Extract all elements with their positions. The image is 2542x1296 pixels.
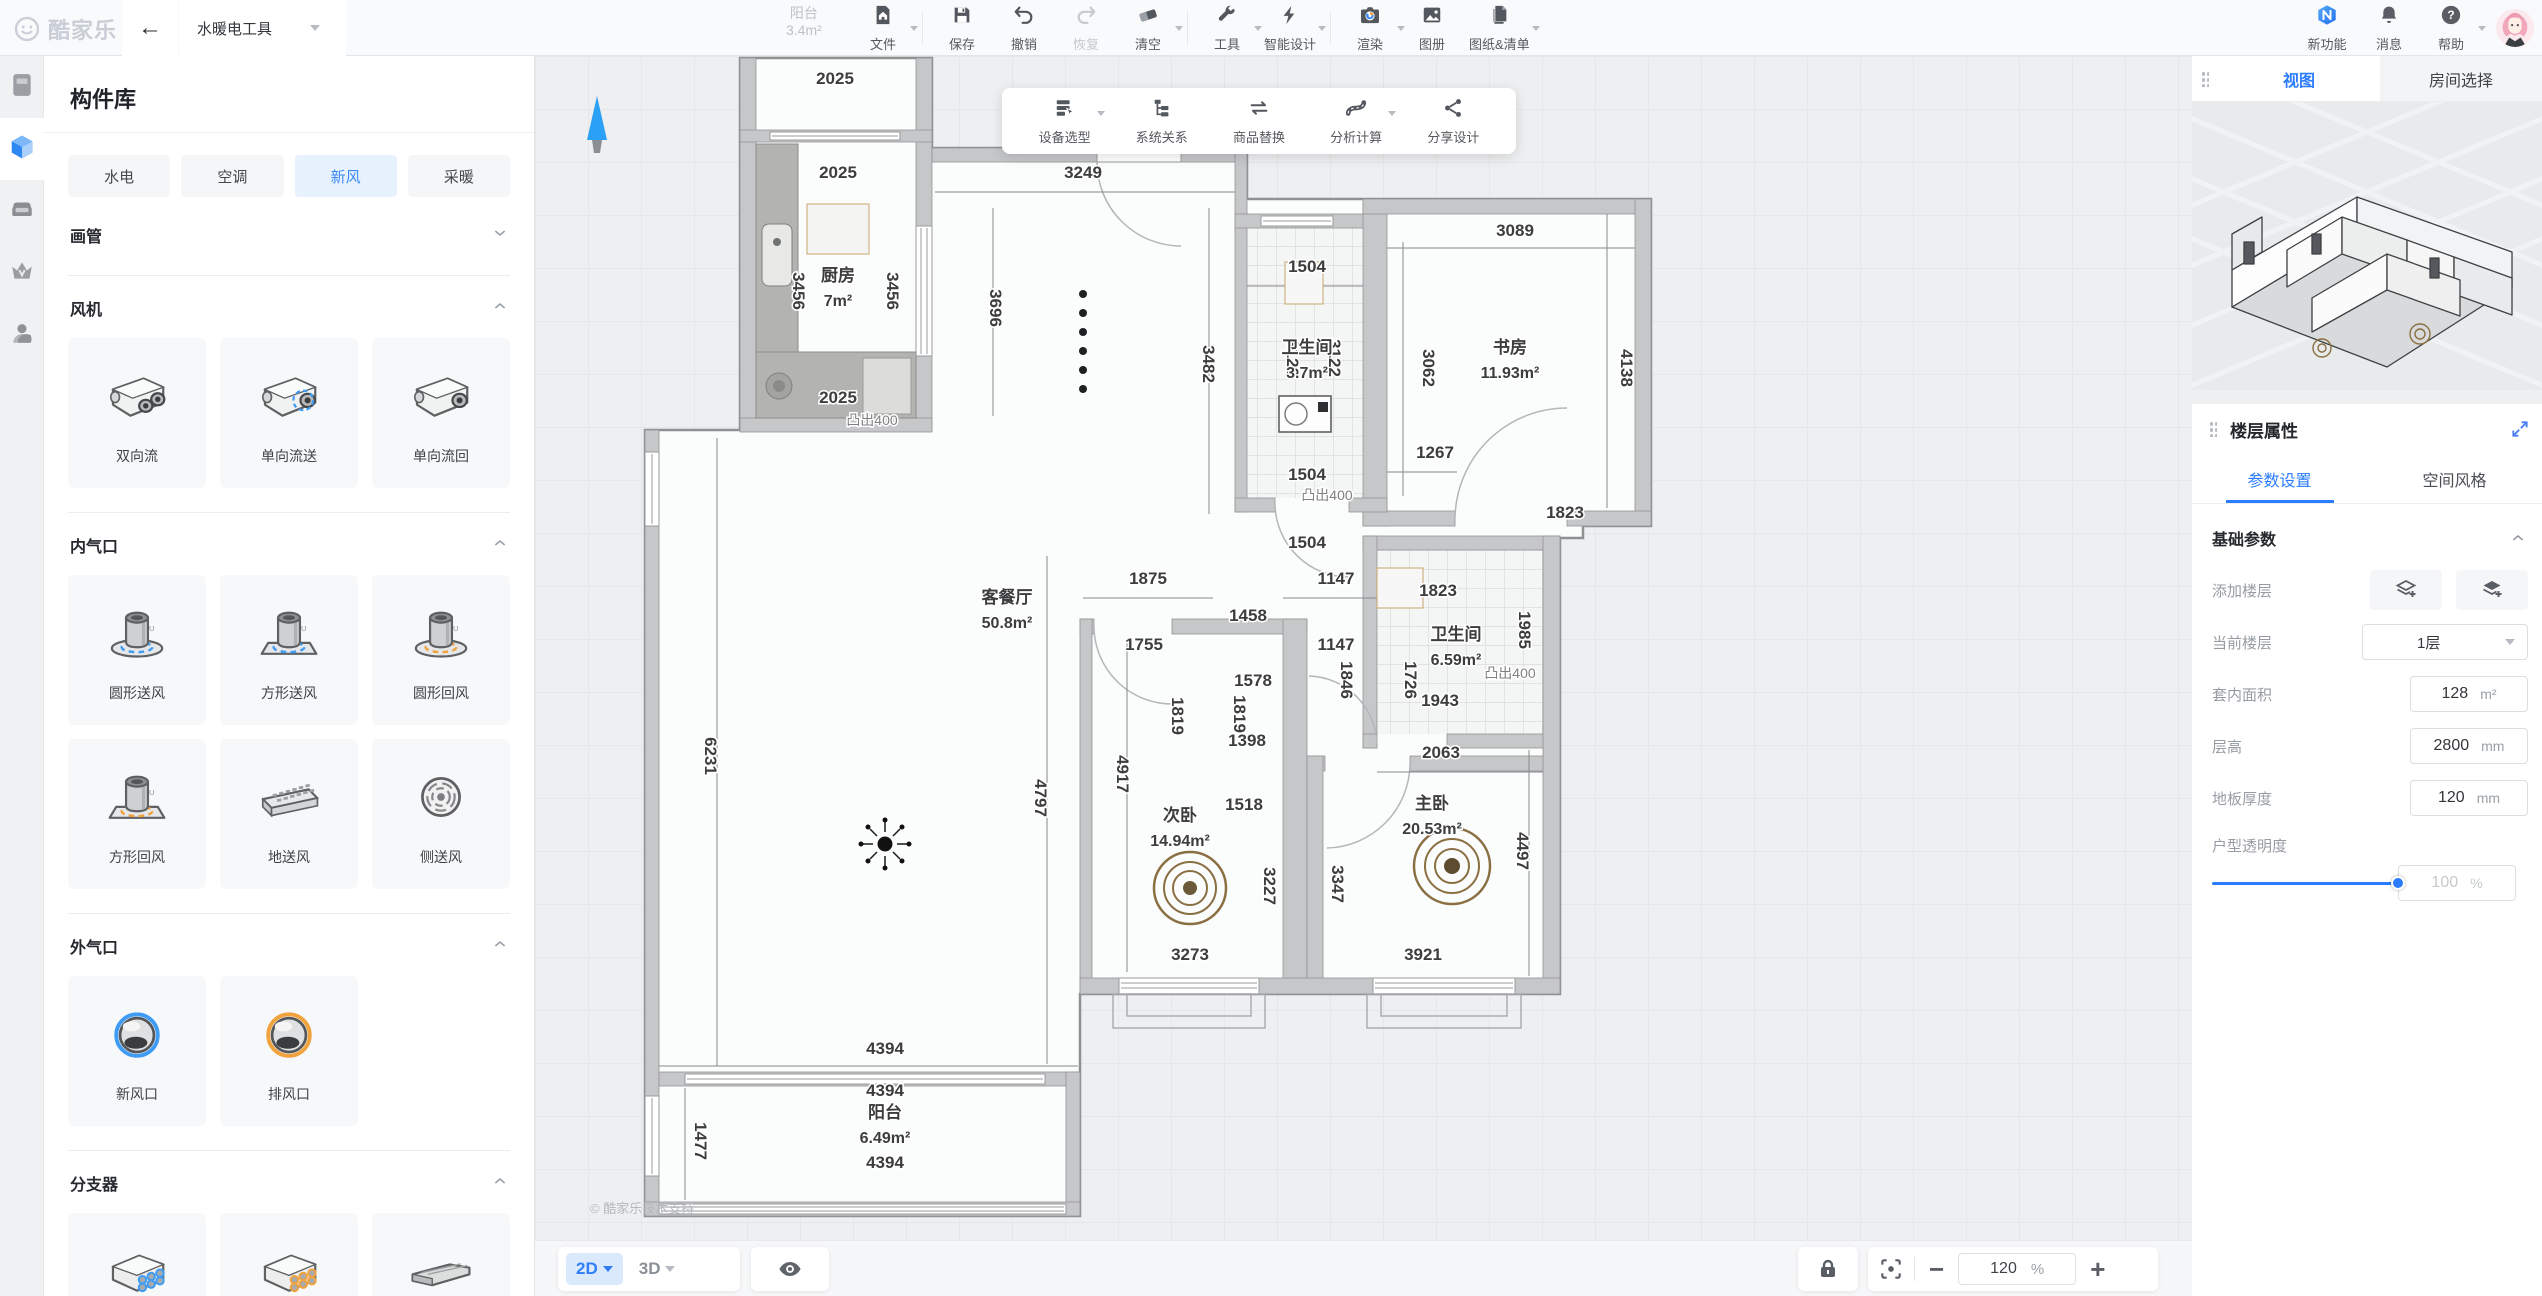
add-floor-below-button[interactable] [2456,570,2528,610]
dimension-text: 1726 [1401,661,1420,699]
dimension-text: 4797 [1031,779,1050,817]
row-label: 添加楼层 [2212,580,2272,601]
album-icon [1421,4,1443,31]
dimension-text: 3089 [1496,221,1534,240]
dimension-text: 1477 [691,1122,710,1160]
svg-text:U: U [301,623,307,632]
dimension-text: 4394 [866,1039,904,1058]
svg-text:U: U [453,623,459,632]
section-内气口: 内气口 U 圆形送风 U 方形送风 U 圆形回风 [44,513,534,914]
component-圆形送风[interactable]: U 圆形送风 [68,575,206,725]
action-label: 分享设计 [1427,127,1479,146]
action-system-tree[interactable]: 系统关系 [1130,97,1194,146]
visibility-button[interactable] [751,1247,829,1291]
ceiling-fan-master-bedroom [1414,828,1490,904]
category-tab-水电[interactable]: 水电 [68,155,170,197]
camera-icon [1359,4,1381,31]
user-avatar[interactable] [2496,9,2534,47]
cube-icon [9,134,35,165]
new-feature-icon [2316,4,2338,31]
dimension-text: 3456 [883,272,902,310]
room-name: 阳台 [868,1102,902,1122]
component-label: 方形回风 [109,847,165,867]
main-toolbar: 文件 保存 撤销 恢复 清空 工具 智能设计 渲染 图册 [852,0,1536,56]
dimension-text: 3249 [1064,163,1102,182]
section-title: 外气口 [70,934,118,958]
toolbar-separator [922,11,923,45]
action-label: 系统关系 [1136,127,1188,146]
dimension-text: 3062 [1419,349,1438,387]
component-顶回风[interactable]: 顶回风 [220,1213,358,1296]
question-icon: ? [2440,4,2462,31]
transparency-slider[interactable] [2212,882,2398,885]
section-title: 画管 [70,223,102,247]
section-header-分支器[interactable]: 分支器 [68,1151,510,1209]
share-icon [1442,97,1464,124]
chevron-down-icon [665,1266,675,1272]
section-分支器: 分支器 顶送风 顶回风 地埋送风 [44,1151,534,1296]
transparency-slider-row: 100 % [2212,858,2528,908]
chevron-down-icon [2505,639,2515,645]
component-顶送风[interactable]: 顶送风 [68,1213,206,1296]
地板厚度-input[interactable]: 120 mm [2410,780,2528,816]
dimension-text: 1823 [1419,581,1457,600]
component-label: 单向流回 [413,446,469,466]
action-device-select[interactable]: 设备选型 [1033,97,1097,146]
component-label: 方形送风 [261,683,317,703]
chevron-down-icon [310,25,320,31]
floor-props-tabs: 参数设置空间风格 [2192,454,2542,504]
vent-round-blue-icon: U [98,598,176,673]
action-swap[interactable]: 商品替换 [1227,97,1291,146]
toolbar-separator [1187,11,1188,45]
top-bar: 酷家乐 阳台3.4m² ← 水暖电工具 文件 保存 撤销 恢复 清空 工具 [0,0,2542,56]
component-label: 单向流送 [261,446,317,466]
input-value: 100 [2431,874,2458,892]
section-title: 风机 [70,296,102,320]
zoom-value: 120 [1990,1260,2017,1278]
logo-smiley-icon [14,16,40,42]
dimension-text: 3227 [1260,867,1279,905]
panel-title: 构件库 [44,56,534,133]
north-arrow-icon [587,96,607,153]
dimension-text: 2025 [819,388,857,407]
zoom-in-button[interactable]: + [2086,1259,2109,1279]
chevron-up-icon [492,936,508,957]
strip-vip[interactable] [0,242,44,304]
drag-handle-icon[interactable] [2192,56,2218,101]
input-unit: m² [2480,686,2496,702]
dimension-text: 2025 [819,163,857,182]
room-name: 次卧 [1163,805,1197,825]
person-icon [9,320,35,351]
component-label: 双向流 [116,446,158,466]
duct1s-icon [250,361,328,436]
row-添加楼层: 添加楼层 [2212,564,2528,616]
row-label: 地板厚度 [2212,788,2272,809]
vent-square-blue-icon: U [250,598,328,673]
row-label: 层高 [2212,736,2242,757]
props-tab-空间风格[interactable]: 空间风格 [2367,454,2542,503]
save-icon [951,4,973,31]
套内面积-input[interactable]: 128 m² [2410,676,2528,712]
dimension-text: 2063 [1422,743,1460,762]
eraser-icon [1137,4,1159,31]
input-value: 128 [2441,685,2468,703]
category-tab-空调[interactable]: 空调 [181,155,283,197]
row-层高: 层高 2800 mm [2212,720,2528,772]
tool-label: 消息 [2376,34,2402,53]
chevron-down-icon [1532,26,1540,31]
zoom-unit: % [2031,1261,2044,1278]
room-name: 卫生间 [1431,624,1482,644]
view-preview-card: 视图房间选择 [2192,56,2542,390]
dimension-text: 1985 [1515,611,1534,649]
zoom-level-input[interactable]: 120 % [1958,1253,2076,1285]
row-当前楼层: 当前楼层 1层 [2212,616,2528,668]
dimension-text: 6231 [701,737,720,775]
basic-params-header[interactable]: 基础参数 [2212,518,2528,564]
left-icon-strip [0,56,44,1296]
category-tabs: 水电空调新风采暖 [44,133,534,203]
component-圆形回风[interactable]: U 圆形回风 [372,575,510,725]
add-floor-above-button[interactable] [2370,570,2442,610]
mode-2d-label: 2D [576,1259,598,1279]
dimension-text: 1267 [1416,443,1454,462]
undo-icon [1013,4,1035,31]
component-排风口[interactable]: 排风口 [220,976,358,1126]
component-单向流送[interactable]: 单向流送 [220,338,358,488]
chevron-up-icon [492,298,508,319]
component-label: 地送风 [268,847,310,867]
sphere-blue-icon [98,999,176,1074]
bottom-bar: 2D 3D [535,1240,2192,1296]
protrusion-badge: 凸出400 [846,412,898,428]
right-panel: 视图房间选择 [2192,56,2542,1296]
tool-eraser[interactable]: 清空 [1117,0,1179,56]
row-套内面积: 套内面积 128 m² [2212,668,2528,720]
category-tab-新风[interactable]: 新风 [295,155,397,197]
project-name: 水暖电工具 [197,18,272,39]
chevron-down-icon [1388,111,1396,116]
dimension-text: 1147 [1318,635,1355,654]
tool-magic[interactable]: 智能设计 [1258,0,1322,56]
dimension-text: 1398 [1228,731,1266,750]
tool-redo[interactable]: 恢复 [1055,0,1117,56]
room-area: 14.94m² [1150,833,1210,850]
dimension-text: 1458 [1229,606,1267,625]
dimension-text: 3696 [986,289,1005,327]
vent-round-orange-icon: U [402,598,480,673]
bell-icon [2378,4,2400,31]
lock-button[interactable] [1798,1247,1858,1291]
category-tab-采暖[interactable]: 采暖 [408,155,510,197]
input-value: 120 [2438,789,2465,807]
chevron-down-icon [1175,26,1183,31]
ceiling-fan-secondary-bedroom [1154,852,1226,924]
tool-album[interactable]: 图册 [1401,0,1463,56]
tool-label: 保存 [949,34,975,53]
component-单向流回[interactable]: 单向流回 [372,338,510,488]
eye-icon [777,1256,803,1282]
system-tree-icon [1151,97,1173,124]
back-arrow-icon: ← [138,14,162,42]
3d-preview[interactable] [2192,102,2542,390]
view-tab-视图[interactable]: 视图 [2218,56,2380,101]
component-grid: 双向流 单向流送 单向流回 [68,334,510,498]
mode-2d-button[interactable]: 2D [566,1253,623,1285]
floor-grille-icon [250,762,328,837]
zoom-out-button[interactable]: − [1925,1259,1948,1279]
tool-label: 撤销 [1011,34,1037,53]
component-侧送风[interactable]: 侧送风 [372,739,510,889]
tool-label: 渲染 [1357,34,1383,53]
room-name: 书房 [1493,337,1527,357]
select-value: 1层 [2375,632,2505,653]
component-label: 侧送风 [420,847,462,867]
buried-duct-icon [402,1236,480,1296]
action-share[interactable]: 分享设计 [1421,97,1485,146]
pipe-calc-icon [1345,97,1367,124]
component-library-panel: 构件库 水电空调新风采暖 画管 风机 双向流 单向流送 单向流回 内气口 U 圆… [44,56,535,1296]
component-label: 新风口 [116,1084,158,1104]
mode-3d-label: 3D [639,1259,661,1279]
room-name: 厨房 [821,265,855,285]
floorplan-drawing[interactable]: 2025202534563456202532493696348215043122… [535,56,2192,1296]
tool-label: 恢复 [1073,34,1099,53]
input-unit: mm [2481,738,2504,754]
component-地送风[interactable]: 地送风 [220,739,358,889]
lock-icon [1816,1257,1840,1281]
floor-properties-title: 楼层属性 [2230,417,2510,442]
section-外气口: 外气口 新风口 排风口 [44,914,534,1151]
room-area: 7m² [824,293,852,310]
dimension-text: 4394 [866,1153,904,1172]
dimension-text: 1518 [1225,795,1263,814]
topbar-new-feature[interactable]: 新功能 [2296,0,2358,56]
action-label: 设备选型 [1039,127,1091,146]
logo-text: 酷家乐 [48,13,117,45]
device-select-icon [1054,97,1076,124]
room-area: 50.8m² [982,615,1033,632]
tool-label: 清空 [1135,34,1161,53]
component-新风口[interactable]: 新风口 [68,976,206,1126]
project-selector[interactable]: 水暖电工具 [179,0,346,56]
transparency-input[interactable]: 100 % [2398,865,2516,901]
topbar-right: 新功能 消息 ? 帮助 [2296,0,2534,56]
dimension-text: 2025 [816,69,854,88]
current-floor-select[interactable]: 1层 [2362,624,2528,660]
dimension-text: 1819 [1168,697,1187,735]
section-header-外气口[interactable]: 外气口 [68,914,510,972]
svg-text:U: U [149,623,155,632]
strip-hardware-library[interactable] [0,56,44,118]
dimension-text: 3456 [789,272,808,310]
drag-handle-icon[interactable] [2200,421,2226,437]
mode-3d-button[interactable]: 3D [629,1253,686,1285]
dimension-text: 1504 [1288,465,1326,484]
dimension-text: 1504 [1288,257,1326,276]
chevron-up-icon [2510,530,2526,546]
component-地埋送风[interactable]: 地埋送风 [372,1213,510,1296]
toolbar-separator [1330,11,1331,45]
section-画管: 画管 [44,203,534,276]
action-label: 商品替换 [1233,127,1285,146]
design-actions-toolbar: 设备选型 系统关系 商品替换 分析计算 分享设计 [1002,88,1516,154]
dimension-text: 1819 [1230,695,1249,733]
protrusion-badge: 凸出400 [1484,665,1536,681]
view-mode-switch: 2D 3D [558,1247,740,1291]
topbar-question[interactable]: ? 帮助 [2420,0,2482,56]
room-name: 卫生间 [1282,337,1333,357]
dimension-text: 4394 [866,1081,904,1100]
action-pipe-calc[interactable]: 分析计算 [1324,97,1388,146]
layer-add-outline-icon [2394,576,2418,605]
row-户型透明度: 户型透明度 [2212,824,2528,858]
row-地板厚度: 地板厚度 120 mm [2212,772,2528,824]
tool-camera[interactable]: 渲染 [1339,0,1401,56]
tool-label: 帮助 [2438,34,2464,53]
section-header-画管[interactable]: 画管 [68,203,510,261]
file-icon [872,4,894,31]
tool-label: 文件 [870,34,896,53]
dimension-text: 1846 [1337,661,1356,699]
view-tab-房间选择[interactable]: 房间选择 [2380,56,2542,101]
svg-text:?: ? [2447,8,2454,22]
chevron-up-icon [492,535,508,556]
tool-wrench[interactable]: 工具 [1196,0,1258,56]
component-grid: U 圆形送风 U 方形送风 U 圆形回风 U 方形回风 地送风 [68,571,510,899]
protrusion-badge: 凸出400 [1301,487,1353,503]
view-tabs: 视图房间选择 [2192,56,2542,102]
chevron-down-icon [2478,26,2486,31]
component-grid: 顶送风 顶回风 地埋送风 [68,1209,510,1296]
component-grid: 新风口 排风口 [68,972,510,1136]
cabinet-icon [9,72,35,103]
dimension-text: 1875 [1129,569,1167,588]
floorplan-canvas[interactable]: 2025202534563456202532493696348215043122… [535,56,2192,1296]
component-方形回风[interactable]: U 方形回风 [68,739,206,889]
action-label: 分析计算 [1330,127,1382,146]
input-value: 2800 [2434,737,2470,755]
dimension-text: 1504 [1288,533,1326,552]
layer-add-fill-icon [2480,576,2504,605]
duct1r-icon [402,361,480,436]
tool-docs[interactable]: 图纸&清单 [1463,0,1536,56]
branch-blue-icon [98,1236,176,1296]
section-title: 分支器 [70,1171,118,1195]
redo-icon [1075,4,1097,31]
section-header-风机[interactable]: 风机 [68,276,510,334]
magic-icon [1279,4,1301,31]
chevron-up-icon [492,1173,508,1194]
sofa-icon [9,196,35,227]
zoom-controls: − 120 % + [1868,1247,2158,1291]
dimension-text: 1943 [1421,691,1459,710]
tool-label: 新功能 [2307,34,2346,53]
component-方形送风[interactable]: U 方形送风 [220,575,358,725]
watermark: © 酷家乐技术支持 [590,1198,694,1217]
tool-file[interactable]: 文件 [852,0,914,56]
strip-furnishing-library[interactable] [0,180,44,242]
chevron-down-icon [910,26,918,31]
swap-icon [1248,97,1270,124]
component-label: 圆形送风 [109,683,165,703]
component-label: 圆形回风 [413,683,469,703]
chevron-down-icon [1318,26,1326,31]
section-风机: 风机 双向流 单向流送 单向流回 [44,276,534,513]
tool-undo[interactable]: 撤销 [993,0,1055,56]
input-unit: mm [2477,790,2500,806]
dimension-text: 1755 [1125,635,1163,654]
section-header-内气口[interactable]: 内气口 [68,513,510,571]
chevron-down-icon [492,225,508,246]
dimension-text: 4497 [1513,832,1532,870]
input-unit: % [2470,875,2482,891]
side-vent-icon [402,762,480,837]
dimension-text: 1578 [1234,671,1272,690]
dimension-text: 3921 [1404,945,1442,964]
chevron-down-icon [1097,111,1105,116]
component-双向流[interactable]: 双向流 [68,338,206,488]
props-tab-参数设置[interactable]: 参数设置 [2192,454,2367,503]
vent-square-orange-icon: U [98,762,176,837]
dimension-text: 1147 [1318,569,1355,588]
floor-properties-card: 楼层属性 参数设置空间风格 基础参数 添加楼层 当前楼层 1层 套内面积 [2192,404,2542,1296]
basic-params-title: 基础参数 [2212,526,2276,550]
branch-orange-icon [250,1236,328,1296]
room-name: 主卧 [1415,793,1449,813]
expand-icon[interactable] [2510,419,2530,439]
room-area: 20.53m² [1402,821,1462,838]
tool-label: 工具 [1214,34,1240,53]
slider-knob[interactable] [2391,876,2405,890]
dimension-text: 3482 [1199,345,1218,383]
tool-save[interactable]: 保存 [931,0,993,56]
topbar-bell[interactable]: 消息 [2358,0,2420,56]
层高-input[interactable]: 2800 mm [2410,728,2528,764]
tool-label: 智能设计 [1264,34,1316,53]
strip-account[interactable] [0,304,44,366]
sphere-orange-icon [250,999,328,1074]
docs-icon [1488,4,1510,31]
room-area: 11.93m² [1481,365,1540,382]
row-label: 套内面积 [2212,684,2272,705]
crown-icon [9,258,35,289]
chandelier-symbol [859,818,912,871]
room-area: 3.7m² [1286,365,1328,382]
svg-text:U: U [149,787,155,796]
room-area: 6.59m² [1431,652,1482,669]
component-label: 排风口 [268,1084,310,1104]
row-label: 户型透明度 [2212,835,2287,856]
dimension-text: 3347 [1328,865,1347,903]
room-name: 客餐厅 [981,587,1033,607]
row-label: 当前楼层 [2212,632,2272,653]
strip-component-library[interactable] [0,118,44,180]
fit-view-icon[interactable] [1878,1256,1904,1282]
section-title: 内气口 [70,533,118,557]
back-button[interactable]: ← [122,0,178,56]
duct2-icon [98,361,176,436]
room-area: 6.49m² [860,1130,911,1147]
dimension-text: 4138 [1617,349,1636,387]
hidden-room-label: 阳台3.4m² [786,5,822,39]
dimension-text: 1823 [1546,503,1584,522]
chevron-down-icon [603,1266,613,1272]
wrench-icon [1216,4,1238,31]
dimension-text: 4917 [1113,755,1132,793]
